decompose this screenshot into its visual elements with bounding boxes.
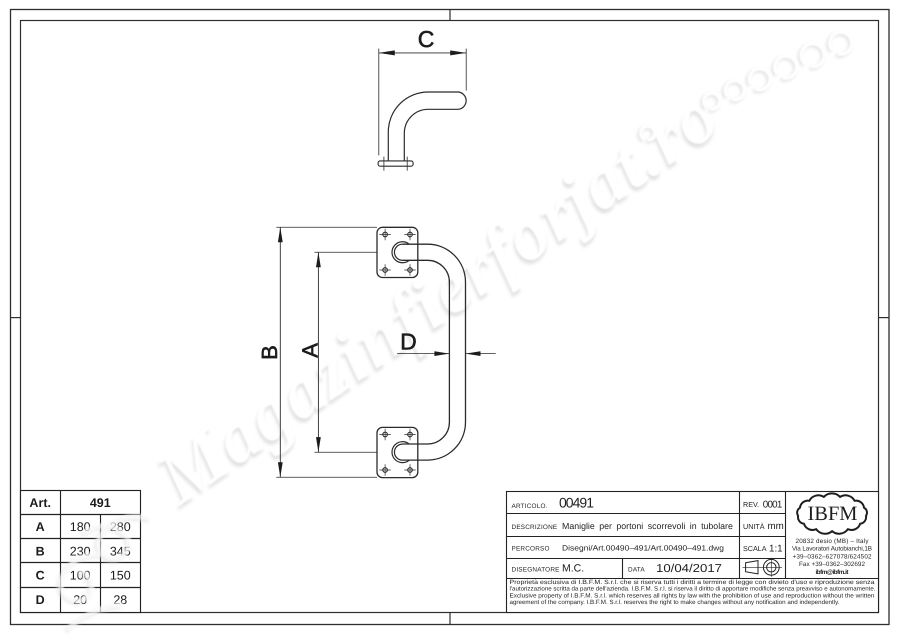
- svg-text:REV.: REV.: [743, 500, 759, 509]
- svg-text:IBFM: IBFM: [808, 503, 858, 525]
- svg-text:00491: 00491: [559, 495, 594, 511]
- svg-text:1:1: 1:1: [769, 544, 783, 555]
- svg-text:Disegni/Art.00490–491/Art.0049: Disegni/Art.00490–491/Art.00490–491.dwg: [562, 543, 724, 552]
- svg-text:M.C.: M.C.: [562, 563, 584, 575]
- svg-text:D: D: [400, 328, 417, 354]
- svg-text:150: 150: [110, 569, 131, 583]
- svg-text:Maniglie per portoni scorrevol: Maniglie per portoni scorrevoli in tubol…: [562, 521, 733, 531]
- svg-text:A: A: [36, 520, 45, 534]
- svg-text:ibfm@ibfm.it: ibfm@ibfm.it: [816, 569, 850, 576]
- svg-text:agreement of the company. I.B.: agreement of the company. I.B.F.M. S.r.l…: [510, 599, 840, 606]
- svg-text:Via Lavoratori Autobianchi,1B: Via Lavoratori Autobianchi,1B: [792, 546, 872, 553]
- svg-text:10/04/2017: 10/04/2017: [656, 563, 722, 575]
- svg-text:PERCORSO: PERCORSO: [512, 545, 550, 552]
- svg-text:DISEGNATORE: DISEGNATORE: [512, 566, 560, 573]
- svg-text:ARTICOLO.: ARTICOLO.: [512, 503, 548, 510]
- svg-text:C: C: [36, 569, 45, 583]
- svg-text:491: 491: [90, 496, 111, 510]
- svg-text:mm: mm: [768, 521, 784, 532]
- svg-text:20832 desio (MB) – Italy: 20832 desio (MB) – Italy: [796, 538, 870, 545]
- svg-text:DATA: DATA: [628, 566, 645, 573]
- svg-text:C: C: [418, 26, 435, 52]
- svg-text:Fax +39–0362–302692: Fax +39–0362–302692: [799, 561, 865, 568]
- svg-text:SCALA: SCALA: [743, 544, 767, 553]
- svg-text:DESCRIZIONE: DESCRIZIONE: [512, 524, 558, 531]
- svg-text:B: B: [257, 345, 282, 360]
- svg-text:0001: 0001: [763, 499, 783, 510]
- svg-text:B: B: [36, 544, 45, 558]
- svg-text:+39–0362–627078/624502: +39–0362–627078/624502: [793, 553, 872, 560]
- svg-text:Art.: Art.: [29, 496, 51, 510]
- svg-text:UNITÀ: UNITÀ: [743, 522, 765, 531]
- svg-text:D: D: [36, 593, 45, 607]
